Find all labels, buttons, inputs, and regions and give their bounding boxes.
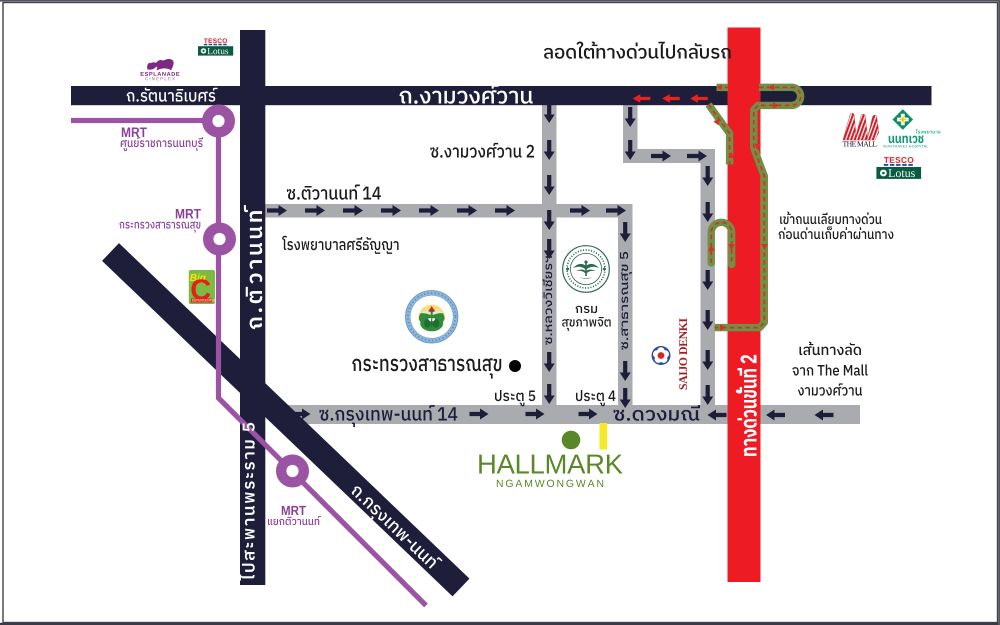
svg-text:SUPERCENTER: SUPERCENTER — [192, 299, 217, 303]
svg-text:NONTHAVEJ HOSPITAL: NONTHAVEJ HOSPITAL — [883, 145, 928, 149]
